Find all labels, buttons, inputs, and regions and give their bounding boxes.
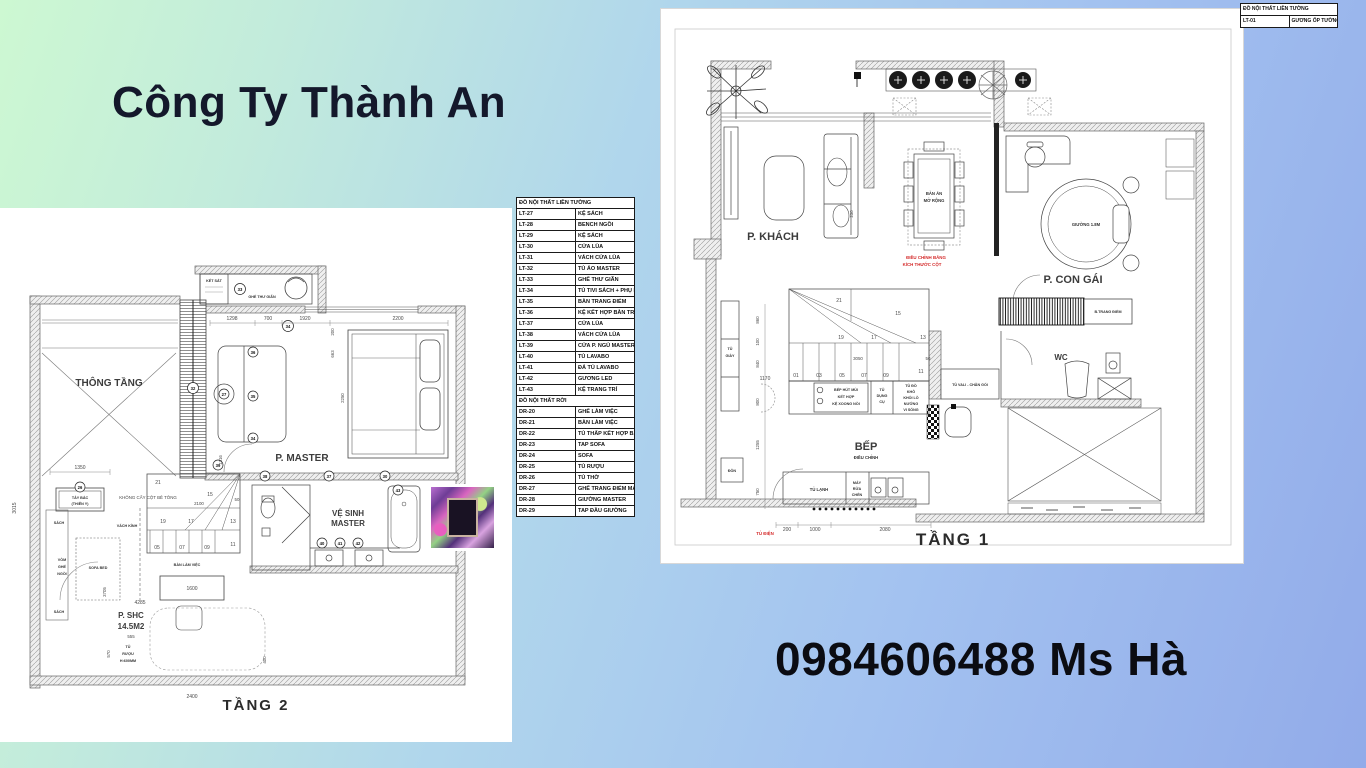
- label-ban-an-1: BÀN ĂN: [926, 191, 942, 196]
- legend-item-label: TỦ ÁO MASTER: [576, 264, 635, 275]
- legend-item-code: LT-33: [517, 275, 576, 286]
- dim-2100: 2100: [194, 501, 204, 506]
- legend-row: LT-28BENCH NGỒI: [517, 220, 635, 231]
- legend-row: DR-26TỦ THỜ: [517, 473, 635, 484]
- floorplan-tang2-drawing: THÔNG TẦNG 32 KÉT SẮT 33 GHẾ THƯ GIÃN 34…: [0, 208, 512, 742]
- stairs-tang2: [147, 474, 240, 553]
- legend-item-code: LT-39: [517, 341, 576, 352]
- dim-570: 570: [106, 650, 111, 658]
- label-kho-1: TỦ ĐỒ: [905, 383, 917, 388]
- legend-row: DR-28GIƯỜNG MASTER: [517, 495, 635, 506]
- stair-num: 07: [861, 373, 867, 379]
- water-heater: [945, 407, 971, 437]
- label-thong-tang: THÔNG TẦNG: [75, 376, 142, 389]
- balcony-planters: [854, 69, 1036, 99]
- dim-3705: 3705: [102, 587, 107, 597]
- stair-num: 05: [839, 373, 845, 379]
- legend-item-label: CỬA LÙA: [576, 242, 635, 253]
- legend-item-label: SOFA: [576, 451, 635, 462]
- stair-num: 09: [204, 545, 210, 551]
- legend-row: DR-29TAP ĐẦU GIƯỜNG: [517, 506, 635, 517]
- tag-34: 34: [286, 324, 291, 329]
- dim-700: 700: [264, 316, 273, 322]
- dim-750: 750: [755, 488, 760, 496]
- floorplan-sheet-tang2: THÔNG TẦNG 32 KÉT SẮT 33 GHẾ THƯ GIÃN 34…: [0, 208, 512, 742]
- legend-row: DR-25TỦ RƯỢU: [517, 462, 635, 473]
- legend-item-label: TAP ĐẦU GIƯỜNG: [576, 506, 635, 517]
- mini-legend-code: LT-01: [1241, 16, 1290, 28]
- shc-furniture: [46, 508, 265, 670]
- label-hood-2: KẾT HỢP: [838, 394, 855, 399]
- legend-row: DR-27GHẾ TRANG ĐIỂM MASTER: [517, 484, 635, 495]
- dim-1600: 1600: [186, 586, 197, 592]
- dim-200: 200: [330, 328, 335, 336]
- label-sach-2: SÁCH: [54, 609, 65, 614]
- tag-40: 40: [320, 541, 325, 546]
- legend-item-code: DR-28: [517, 495, 576, 506]
- dim-1316: 1316: [218, 455, 223, 465]
- render-thumbnail: [428, 484, 497, 551]
- label-tay-bac: TÂY BẮC: [72, 495, 89, 500]
- walls-tang2: [30, 266, 465, 688]
- legend-item-label: TỦ TIVI SÁCH + PHỤ KIỆN: [576, 286, 635, 297]
- legend-item-code: DR-29: [517, 506, 576, 517]
- label-hood-3: KỆ XOONG NỒI: [832, 401, 859, 406]
- legend-row: DR-23TAP SOFA: [517, 440, 635, 451]
- label-ve-sinh: VỆ SINH: [332, 509, 364, 518]
- label-hood-1: BẾP HÚT MÙI: [834, 387, 858, 392]
- dim-100: 100: [755, 338, 760, 346]
- sheet-frame: [675, 29, 1231, 545]
- walls-tang1: [681, 61, 1204, 522]
- legend-item-code: LT-32: [517, 264, 576, 275]
- legend-row: LT-37CỬA LÙA: [517, 319, 635, 330]
- tag-36: 36: [251, 350, 256, 355]
- label-ket-sat: KÉT SẮT: [206, 278, 223, 283]
- label-ban-lam-viec: BÀN LÀM VIỆC: [174, 562, 201, 567]
- legend-item-code: DR-20: [517, 407, 576, 418]
- tag-43: 43: [396, 488, 401, 493]
- dim-2400: 2400: [186, 694, 197, 700]
- legend-row: DR-21BÀN LÀM VIỆC: [517, 418, 635, 429]
- thong-tang-void: [42, 320, 178, 476]
- label-kho-3: KHỐI LÒ: [903, 395, 918, 400]
- legend-item-code: LT-29: [517, 231, 576, 242]
- floor1-title: TẦNG 1: [916, 530, 990, 549]
- stair-num: 17: [871, 335, 877, 341]
- poster-background: { "header": { "company": "Công Ty Thành …: [0, 0, 1366, 768]
- dim-3050: 3050: [853, 356, 863, 361]
- label-vom-2: GHẾ: [58, 564, 67, 569]
- dim-840: 840: [755, 360, 760, 368]
- legend-item-label: TỦ THẤP KẾT HỢP BÀN LÀM VIỆC: [576, 429, 635, 440]
- legend-item-code: DR-21: [517, 418, 576, 429]
- master-bed: [348, 330, 448, 458]
- mini-legend-label: GƯƠNG ỐP TƯỜNG: [1289, 16, 1338, 28]
- label-giuong: GIƯỜNG 1.8M: [1072, 222, 1101, 227]
- entry-door-arc: [773, 469, 803, 499]
- legend-item-label: TỦ RƯỢU: [576, 462, 635, 473]
- dim-2200: 2200: [392, 316, 403, 322]
- tag-35: 35: [251, 394, 256, 399]
- label-tu-giay-2: GIÀY: [725, 353, 735, 358]
- dim-663: 663: [330, 350, 335, 358]
- label-kho-2: KHÔ: [907, 389, 915, 394]
- label-p-master: P. MASTER: [275, 453, 329, 464]
- dim-2080: 2080: [879, 527, 890, 533]
- stair-num: 11: [230, 542, 235, 548]
- legend-item-label: TỦ LAVABO: [576, 352, 635, 363]
- dim-2250: 2250: [340, 393, 345, 403]
- dim-800: 800: [755, 398, 760, 406]
- legend-item-code: LT-30: [517, 242, 576, 253]
- label-rua-1: MÁY: [853, 480, 862, 485]
- stair-num: 21: [155, 480, 161, 486]
- legend-row: DR-24SOFA: [517, 451, 635, 462]
- marker-square: [951, 404, 956, 409]
- legend-row: LT-33GHẾ THƯ GIÃN: [517, 275, 635, 286]
- wall-divider-black: [994, 123, 999, 256]
- company-title: Công Ty Thành An: [112, 78, 592, 128]
- label-wc: WC: [1054, 353, 1068, 362]
- stair-num: 15: [895, 311, 901, 317]
- phone-contact: 0984606488 Ms Hà: [775, 632, 1295, 686]
- legend-item-label: VÁCH CỬA LÙA: [576, 330, 635, 341]
- congai-furniture: [1006, 136, 1194, 271]
- dim-4285: 4285: [134, 600, 145, 606]
- legend-item-code: LT-28: [517, 220, 576, 231]
- label-kho-5: VI SÓNG: [903, 407, 918, 412]
- legend-item-code: LT-31: [517, 253, 576, 264]
- legend-row: LT-40TỦ LAVABO: [517, 352, 635, 363]
- legend-item-code: LT-43: [517, 385, 576, 396]
- label-p-khach: P. KHÁCH: [747, 230, 799, 243]
- ceiling-units: [893, 98, 1051, 115]
- legend-row: LT-31VÁCH CỬA LÙA: [517, 253, 635, 264]
- legend-row: LT-34TỦ TIVI SÁCH + PHỤ KIỆN: [517, 286, 635, 297]
- label-tu-lanh: TỦ LẠNH: [810, 487, 828, 492]
- dim-1255: 1255: [755, 440, 760, 450]
- stair-num: 03: [816, 373, 822, 379]
- dim-50-f1: 50: [926, 356, 931, 361]
- label-bep-sub: ĐIỀU CHỈNH: [854, 455, 878, 460]
- mini-legend-header: ĐỒ NỘI THẤT LIỀN TƯỜNG: [1241, 4, 1338, 16]
- furniture-legend-table: ĐỒ NỘI THẤT LIỀN TƯỜNG LT-27KỆ SÁCHLT-28…: [516, 197, 635, 517]
- legend-item-label: ĐÁ TỦ LAVABO: [576, 363, 635, 374]
- legend-row: LT-36KỆ KẾT HỢP BÀN TRANG ĐIỂM: [517, 308, 635, 319]
- label-sach-1: SÁCH: [54, 520, 65, 525]
- label-p-con-gai: P. CON GÁI: [1043, 273, 1102, 286]
- label-p-shc: P. SHC: [118, 611, 144, 620]
- legend-item-label: GHẾ LÀM VIỆC: [576, 407, 635, 418]
- tag-37: 37: [327, 474, 332, 479]
- stairs-tang1: [789, 289, 929, 381]
- legend-item-label: KỆ KẾT HỢP BÀN TRANG ĐIỂM: [576, 308, 635, 319]
- stair-num: 01: [793, 373, 799, 379]
- stair-num: 09: [883, 373, 889, 379]
- label-tu-vali: TỦ VALI - CHĂN GỐI: [952, 382, 988, 387]
- floor2-title: TẦNG 2: [222, 697, 289, 714]
- dim-3015: 3015: [12, 502, 18, 513]
- legend-item-label: KỆ SÁCH: [576, 231, 635, 242]
- legend-item-code: LT-40: [517, 352, 576, 363]
- dim-400: 400: [262, 656, 267, 664]
- legend-item-label: BENCH NGỒI: [576, 220, 635, 231]
- tag-32: 32: [191, 386, 196, 391]
- label-ghe-thu-gian: GHẾ THƯ GIÃN: [248, 294, 276, 299]
- legend-item-label: KỆ TRANG TRÍ: [576, 385, 635, 396]
- stair-num: 19: [160, 519, 166, 525]
- legend-item-code: DR-27: [517, 484, 576, 495]
- stair-num: 05: [154, 545, 160, 551]
- label-don: ĐÔN: [728, 468, 737, 473]
- dim-50: 50: [235, 497, 240, 502]
- legend-item-label: GHẾ THƯ GIÃN: [576, 275, 635, 286]
- legend-item-code: DR-25: [517, 462, 576, 473]
- dim-1000: 1000: [809, 527, 820, 533]
- dim-line-bottom: [776, 522, 931, 528]
- tag-30: 30: [383, 474, 388, 479]
- note-dieu-chinh-1: ĐIỀU CHỈNH BẰNG: [906, 255, 946, 260]
- legend-item-label: KỆ SÁCH: [576, 209, 635, 220]
- balcony-window: [721, 113, 991, 121]
- legend-item-label: GIƯỜNG MASTER: [576, 495, 635, 506]
- legend-item-code: LT-35: [517, 297, 576, 308]
- note-khong-cay: KHÔNG CẤY CỘT BÊ TÔNG: [119, 495, 177, 500]
- legend-item-code: LT-41: [517, 363, 576, 374]
- makeup-counter: [999, 298, 1084, 325]
- label-p-shc-area: 14.5M2: [118, 622, 145, 631]
- legend-item-code: LT-34: [517, 286, 576, 297]
- render-mirror: [447, 498, 477, 537]
- legend-item-label: TỦ THỜ: [576, 473, 635, 484]
- legend-item-code: DR-24: [517, 451, 576, 462]
- floorplan-tang1-drawing: P. KHÁCH 230 BÀN ĂN MỞ RỘNG ĐIỀU CHỈNH B…: [661, 9, 1241, 561]
- legend-item-label: TAP SOFA: [576, 440, 635, 451]
- tag-41: 41: [338, 541, 343, 546]
- label-sofa-bed: SOFA BED: [89, 566, 108, 570]
- dining-set: [904, 142, 964, 250]
- legend-item-code: LT-42: [517, 374, 576, 385]
- dim-1298: 1298: [226, 316, 237, 322]
- living-room-furniture: [724, 127, 858, 238]
- label-trang-diem: B.TRANG ĐIỂM: [1094, 309, 1121, 314]
- legend-row: LT-43KỆ TRANG TRÍ: [517, 385, 635, 396]
- spot-dots: [813, 508, 876, 511]
- label-rua-2: RỬA: [853, 486, 862, 491]
- floorplan-sheet-tang1: P. KHÁCH 230 BÀN ĂN MỞ RỘNG ĐIỀU CHỈNH B…: [660, 8, 1244, 564]
- dim-860: 860: [755, 316, 760, 324]
- tag-33: 33: [238, 287, 243, 292]
- tag-34b: 34: [251, 436, 256, 441]
- stair-num: 19: [838, 335, 844, 341]
- legend-row: LT-27KỆ SÁCH: [517, 209, 635, 220]
- label-dungcu-1: TỦ: [880, 387, 885, 392]
- label-thien-y: (THIÊN Y): [72, 501, 90, 506]
- storage-room: [1008, 408, 1161, 514]
- legend-row: LT-39CỬA P. NGỦ MASTER: [517, 341, 635, 352]
- dim-line-master-top: [210, 320, 448, 326]
- dim-1350: 1350: [74, 465, 85, 471]
- label-rua-3: CHÉN: [852, 492, 863, 497]
- legend-item-code: LT-36: [517, 308, 576, 319]
- label-vom-1: VÒM: [58, 557, 66, 562]
- legend-row: LT-29KỆ SÁCH: [517, 231, 635, 242]
- label-tu-giay-1: TỦ: [728, 346, 733, 351]
- legend-item-label: GHẾ TRANG ĐIỂM MASTER: [576, 484, 635, 495]
- stair-num: 13: [920, 335, 926, 341]
- legend-item-label: GƯƠNG LED: [576, 374, 635, 385]
- label-tu-dien: TỦ ĐIỆN: [756, 531, 774, 536]
- stair-num: 15: [207, 492, 213, 498]
- wc-fixtures: [1001, 331, 1131, 399]
- legend-row: LT-35BÀN TRANG ĐIỂM: [517, 297, 635, 308]
- legend-item-code: DR-23: [517, 440, 576, 451]
- mini-legend-table: ĐỒ NỘI THẤT LIỀN TƯỜNG LT-01 GƯƠNG ỐP TƯ…: [1240, 3, 1338, 28]
- legend-item-label: BÀN TRANG ĐIỂM: [576, 297, 635, 308]
- dim-200-f1: 200: [783, 527, 792, 533]
- legend-item-code: DR-22: [517, 429, 576, 440]
- stair-num: 21: [836, 298, 842, 304]
- legend-item-code: DR-26: [517, 473, 576, 484]
- legend-row: DR-20GHẾ LÀM VIỆC: [517, 407, 635, 418]
- tag-27: 27: [222, 392, 227, 397]
- legend-row: LT-42GƯƠNG LED: [517, 374, 635, 385]
- door-arc-master: [224, 444, 252, 472]
- tag-42: 42: [356, 541, 361, 546]
- label-vom-3: NGỒI: [57, 571, 66, 576]
- legend-item-label: BÀN LÀM VIỆC: [576, 418, 635, 429]
- legend-item-label: CỬA LÙA: [576, 319, 635, 330]
- legend-section-header: ĐỒ NỘI THẤT RỜI: [517, 396, 635, 407]
- legend-row: LT-30CỬA LÙA: [517, 242, 635, 253]
- legend-row: LT-38VÁCH CỬA LÙA: [517, 330, 635, 341]
- label-tu-ruou-3: H:600MM: [120, 659, 136, 663]
- dim-1920: 1920: [299, 316, 310, 322]
- legend-item-code: LT-27: [517, 209, 576, 220]
- label-dungcu-2: DỤNG: [877, 394, 888, 398]
- stair-num: 11: [918, 369, 923, 375]
- legend-row: LT-32TỦ ÁO MASTER: [517, 264, 635, 275]
- label-tu-ruou-2: RƯỢU: [122, 652, 134, 656]
- legend-row: DR-22TỦ THẤP KẾT HỢP BÀN LÀM VIỆC: [517, 429, 635, 440]
- stair-num: 07: [179, 545, 185, 551]
- stair-num: 17: [188, 519, 194, 525]
- note-dieu-chinh-2: KÍCH THƯỚC CỘT: [903, 262, 942, 267]
- label-dungcu-3: CỤ: [879, 400, 885, 404]
- legend-item-label: VÁCH CỬA LÙA: [576, 253, 635, 264]
- label-tu-ruou-1: TỦ: [126, 644, 131, 649]
- tag-38: 38: [263, 474, 268, 479]
- shoe-cabinet: [721, 301, 743, 482]
- spiral-plant: [979, 71, 1007, 99]
- label-kho-4: NƯỚNG: [904, 401, 919, 406]
- label-bep: BẾP: [855, 440, 878, 453]
- dim-230: 230: [849, 210, 854, 218]
- legend-item-code: LT-37: [517, 319, 576, 330]
- label-ban-an-2: MỞ RỘNG: [924, 198, 945, 203]
- legend-item-label: CỬA P. NGỦ MASTER: [576, 341, 635, 352]
- legend-row: LT-41ĐÁ TỦ LAVABO: [517, 363, 635, 374]
- dim-555: 555: [127, 634, 135, 639]
- label-ve-sinh-2: MASTER: [331, 519, 365, 528]
- tag-26: 26: [78, 485, 83, 490]
- label-vach-kinh: VÁCH KÍNH: [117, 523, 138, 528]
- legend-item-code: LT-38: [517, 330, 576, 341]
- stair-num: 13: [230, 519, 236, 525]
- legend-section-header: ĐỒ NỘI THẤT LIỀN TƯỜNG: [517, 198, 635, 209]
